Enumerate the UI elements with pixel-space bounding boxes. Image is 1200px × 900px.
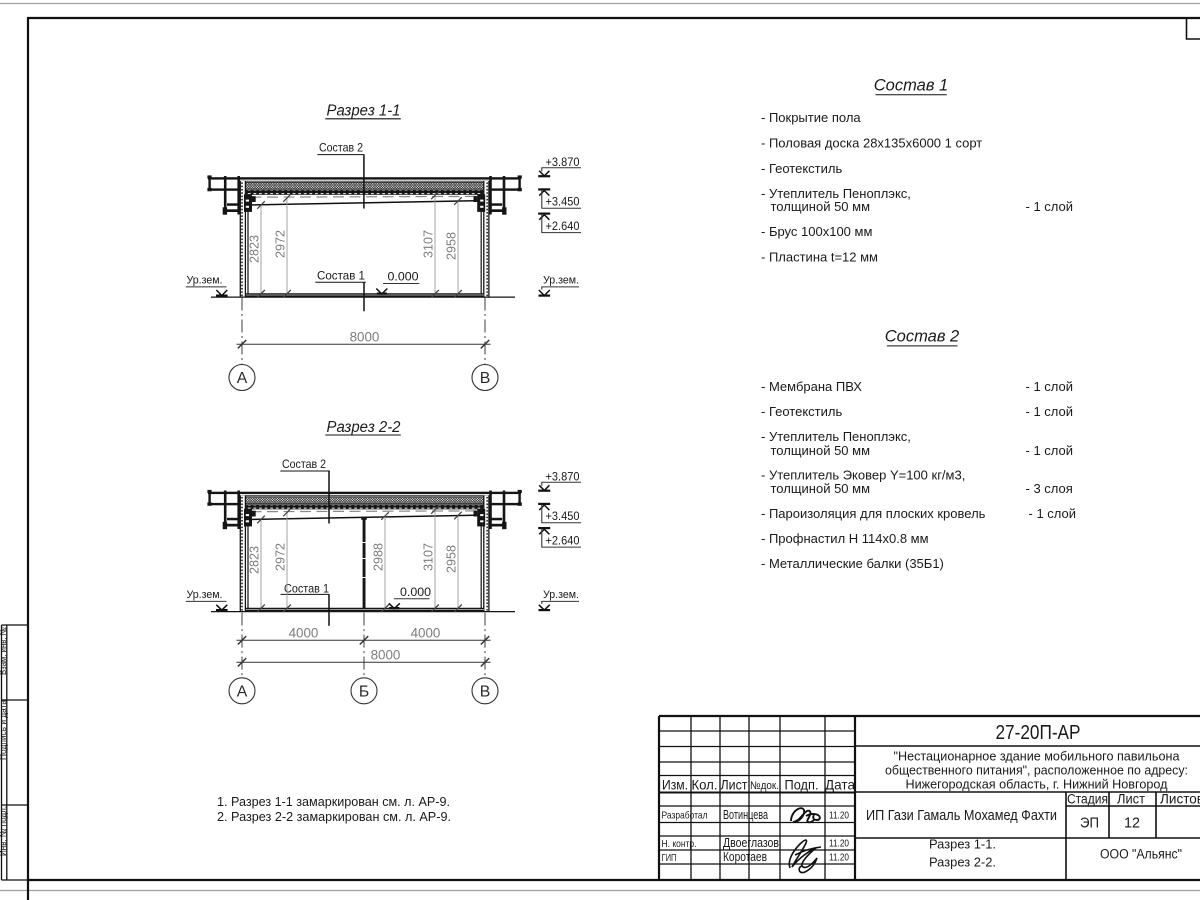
svg-text:1. Разрез 1-1 замаркирован см.: 1. Разрез 1-1 замаркирован см. л. АР-9. [217,794,450,809]
svg-text:Подпись и дата: Подпись и дата [0,699,9,760]
svg-text:27-20П-АР: 27-20П-АР [996,722,1081,744]
svg-text:2958: 2958 [444,232,458,260]
svg-text:+3.870: +3.870 [546,155,580,169]
svg-text:+3.870: +3.870 [546,469,580,483]
svg-text:- Пластина t=12 мм: - Пластина t=12 мм [761,249,878,264]
svg-text:- Утеплитель Пеноплэкс,: - Утеплитель Пеноплэкс, [761,429,911,444]
svg-text:Ур.зем.: Ур.зем. [187,274,223,286]
svg-text:Ур.зем.: Ур.зем. [543,589,579,601]
svg-text:В: В [480,684,491,701]
svg-text:- 1 слой: - 1 слой [1029,506,1077,521]
svg-text:11.20: 11.20 [829,810,849,821]
svg-text:Взам. инв. №: Взам. инв. № [0,627,9,675]
svg-text:2988: 2988 [371,543,385,571]
svg-text:12: 12 [1124,816,1140,832]
svg-text:Кол.: Кол. [692,777,718,793]
svg-text:ЭП: ЭП [1080,816,1099,832]
svg-text:- 1 слой: - 1 слой [1026,199,1074,214]
svg-text:Ур.зем.: Ур.зем. [187,589,223,601]
svg-text:- Половая доска 28х135х6000 1: - Половая доска 28х135х6000 1 сорт [761,136,982,151]
svg-text:А: А [237,684,248,701]
svg-text:Разрез 1-1.: Разрез 1-1. [929,837,996,852]
svg-text:11.20: 11.20 [829,838,849,849]
svg-text:11.20: 11.20 [829,852,849,863]
svg-text:Подп.: Подп. [785,777,819,793]
svg-text:8000: 8000 [371,647,401,662]
svg-text:0.000: 0.000 [388,270,419,284]
svg-text:ГИП: ГИП [662,852,677,864]
svg-text:2823: 2823 [247,235,261,263]
svg-text:Двоеглазов: Двоеглазов [723,836,779,850]
svg-text:Коротаев: Коротаев [723,850,767,864]
svg-text:2958: 2958 [444,545,458,573]
svg-text:толщиной 50 мм: толщиной 50 мм [771,199,871,214]
svg-text:4000: 4000 [289,625,319,640]
svg-text:ИП Гази Гамаль Мохамед Фахти: ИП Гази Гамаль Мохамед Фахти [866,808,1057,824]
svg-text:толщиной 50 мм: толщиной 50 мм [771,443,871,458]
svg-text:№док.: №док. [750,780,779,792]
svg-text:- Пароизоляция для плоских кро: - Пароизоляция для плоских кровель [761,506,986,521]
svg-text:Н. контр.: Н. контр. [662,838,697,850]
svg-text:- 1 слой: - 1 слой [1026,404,1074,419]
svg-text:Ур.зем.: Ур.зем. [543,274,579,286]
svg-text:Разработал: Разработал [662,810,708,822]
svg-text:- Металлические балки (35Б1): - Металлические балки (35Б1) [761,556,944,571]
svg-text:Состав 2: Состав 2 [885,328,959,346]
svg-text:- Мембрана ПВХ: - Мембрана ПВХ [761,379,862,394]
svg-text:ООО "Альянс": ООО "Альянс" [1100,847,1182,862]
svg-text:- Профнастил Н 114х0.8 мм: - Профнастил Н 114х0.8 мм [761,531,929,546]
svg-text:- Геотекстиль: - Геотекстиль [761,404,842,419]
svg-text:Состав 1: Состав 1 [874,77,948,95]
svg-text:Дата: Дата [825,777,855,793]
svg-text:А: А [237,370,248,387]
svg-text:+2.640: +2.640 [546,219,580,233]
svg-text:Состав 2: Состав 2 [282,457,326,471]
svg-text:- 1 слой: - 1 слой [1026,379,1074,394]
svg-text:Стадия: Стадия [1067,792,1108,807]
svg-text:толщиной 50 мм: толщиной 50 мм [771,481,871,496]
svg-text:2972: 2972 [273,230,287,258]
svg-text:- 1 слой: - 1 слой [1026,443,1074,458]
svg-text:Лист: Лист [721,777,749,793]
svg-text:Состав 2: Состав 2 [319,140,363,154]
svg-text:2823: 2823 [247,546,261,574]
svg-text:+3.450: +3.450 [546,194,580,208]
svg-text:3107: 3107 [421,230,435,258]
svg-text:общественного питания", распол: общественного питания", расположенное по… [885,764,1188,778]
svg-text:Разрез 1-1: Разрез 1-1 [327,103,401,120]
svg-text:Разрез 2-2.: Разрез 2-2. [929,855,996,870]
svg-text:Состав 1: Состав 1 [284,581,329,595]
svg-text:+3.450: +3.450 [546,509,580,523]
svg-text:- 3 слоя: - 3 слоя [1026,481,1073,496]
svg-text:- Брус 100х100 мм: - Брус 100х100 мм [761,224,872,239]
svg-text:Разрез 2-2: Разрез 2-2 [327,419,401,436]
svg-text:Состав 1: Состав 1 [317,268,365,282]
svg-text:Изм.: Изм. [662,777,688,793]
svg-text:- Геотекстиль: - Геотекстиль [761,161,842,176]
svg-text:4000: 4000 [411,625,441,640]
svg-text:Б: Б [359,684,369,701]
svg-text:Нижегородская область, г. Нижн: Нижегородская область, г. Нижний Новгоро… [906,778,1169,792]
svg-text:В: В [480,370,491,387]
svg-text:8000: 8000 [350,330,380,345]
svg-text:3107: 3107 [421,543,435,571]
svg-text:- Покрытие пола: - Покрытие пола [761,110,861,125]
svg-text:Вотинцева: Вотинцева [723,808,768,822]
svg-text:2. Разрез 2-2 замаркирован см.: 2. Разрез 2-2 замаркирован см. л. АР-9. [217,809,451,824]
svg-text:Листов: Листов [1160,792,1200,807]
svg-text:+2.640: +2.640 [546,533,580,547]
svg-text:2972: 2972 [273,543,287,571]
svg-text:Лист: Лист [1117,792,1145,807]
svg-text:0.000: 0.000 [400,585,431,599]
svg-text:"Нестационарное здание мобильн: "Нестационарное здание мобильного павиль… [894,750,1180,764]
svg-text:Инв. № подл.: Инв. № подл. [0,806,9,856]
